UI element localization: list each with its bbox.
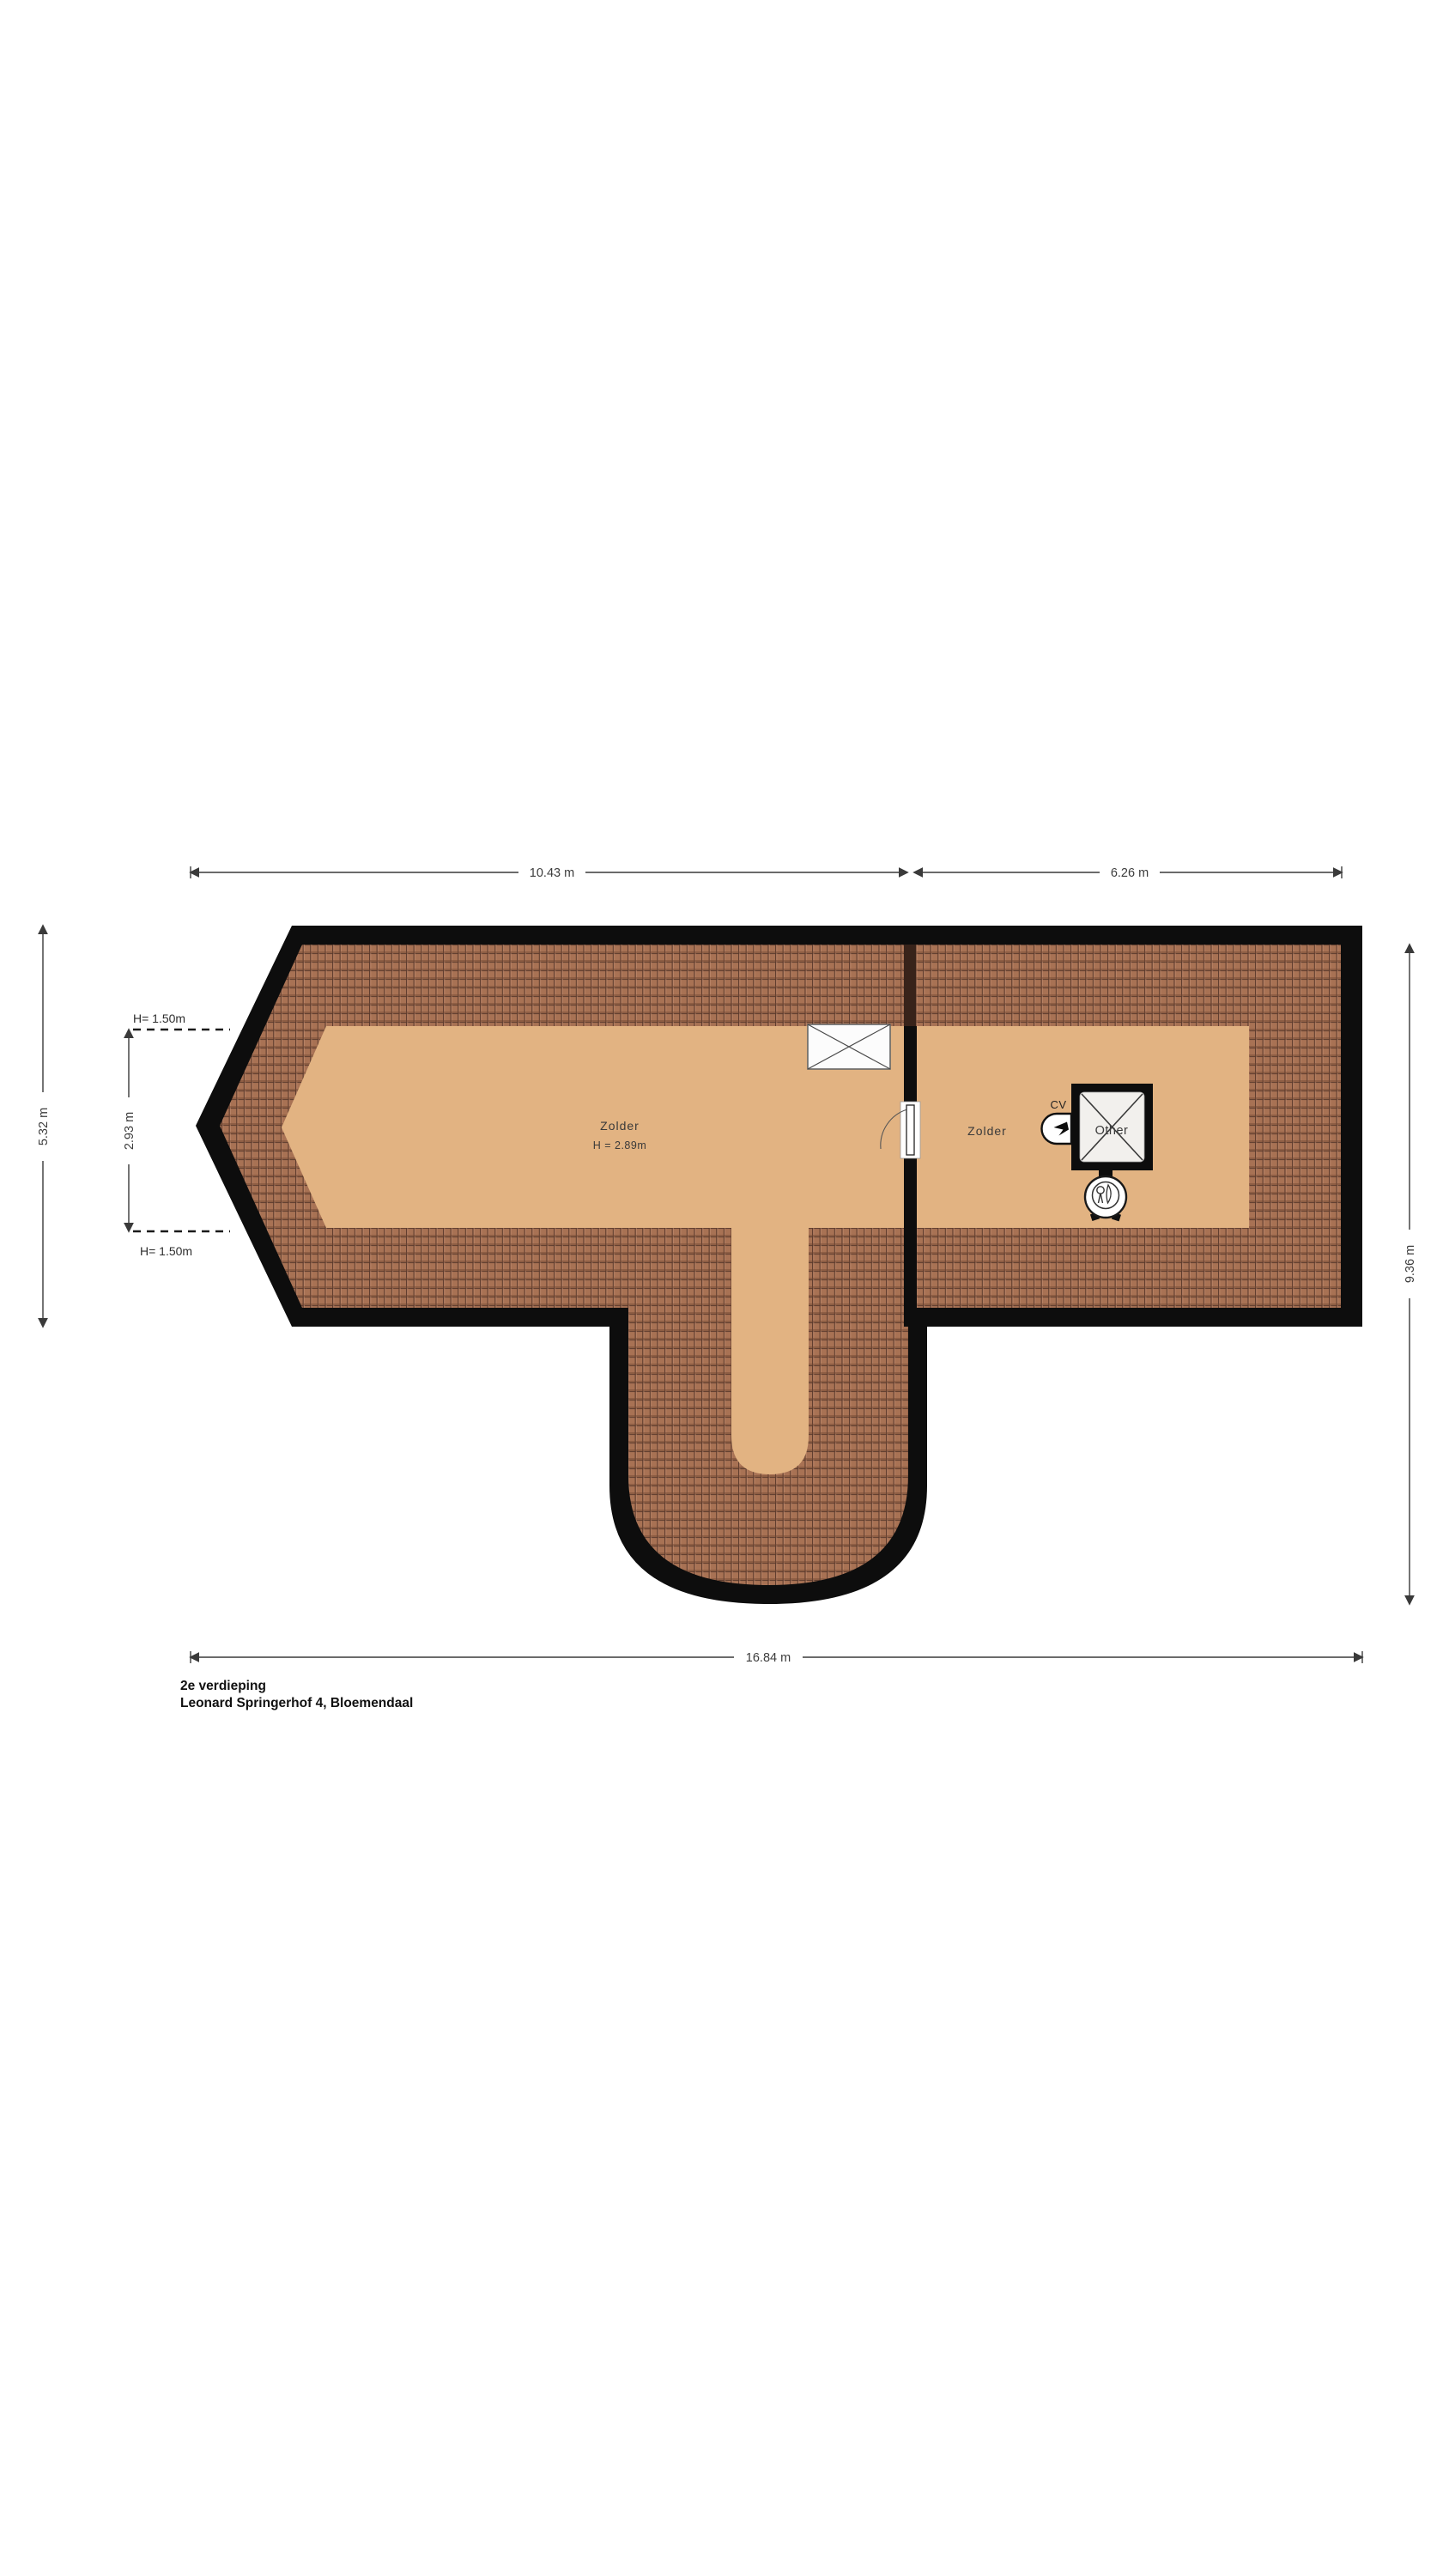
- cv-unit: [1042, 1114, 1072, 1144]
- shaft-vent-stub: [1099, 1169, 1113, 1176]
- address-title: Leonard Springerhof 4, Bloemendaal: [180, 1696, 413, 1710]
- room-height-attic-left: H = 2.89m: [593, 1139, 647, 1151]
- cv-label: CV: [1050, 1098, 1066, 1111]
- partition-wall: [904, 1026, 917, 1327]
- stairwell-floor: [731, 1228, 809, 1474]
- partition-wall-roof-seam: [904, 945, 916, 1027]
- dimension-top-right-label: 6.26 m: [1111, 866, 1149, 880]
- room-label-attic-left: Zolder: [600, 1119, 640, 1133]
- dimension-right-label: 9.36 m: [1404, 1245, 1417, 1283]
- floorplan-drawing: Other CV Zolder H = 2.89m Zolder 10.43 m…: [0, 0, 1449, 2576]
- dimension-bottom-label: 16.84 m: [746, 1651, 791, 1665]
- shaft-label: Other: [1095, 1124, 1129, 1138]
- shaft-box: Other: [1071, 1084, 1153, 1176]
- dimension-left-inner-label: 2.93 m: [123, 1112, 136, 1150]
- dimension-top-left-label: 10.43 m: [530, 866, 574, 880]
- roof-window-icon: [808, 1024, 890, 1069]
- floorplan-page: Other CV Zolder H = 2.89m Zolder 10.43 m…: [0, 0, 1449, 2576]
- room-label-attic-right: Zolder: [967, 1124, 1007, 1138]
- ventilation-unit-icon: [1085, 1176, 1126, 1221]
- dimension-left-total-label: 5.32 m: [37, 1108, 51, 1145]
- floor-title: 2e verdieping: [180, 1679, 266, 1693]
- height-marker-top-label: H= 1.50m: [133, 1012, 185, 1025]
- height-marker-bottom-label: H= 1.50m: [140, 1244, 192, 1258]
